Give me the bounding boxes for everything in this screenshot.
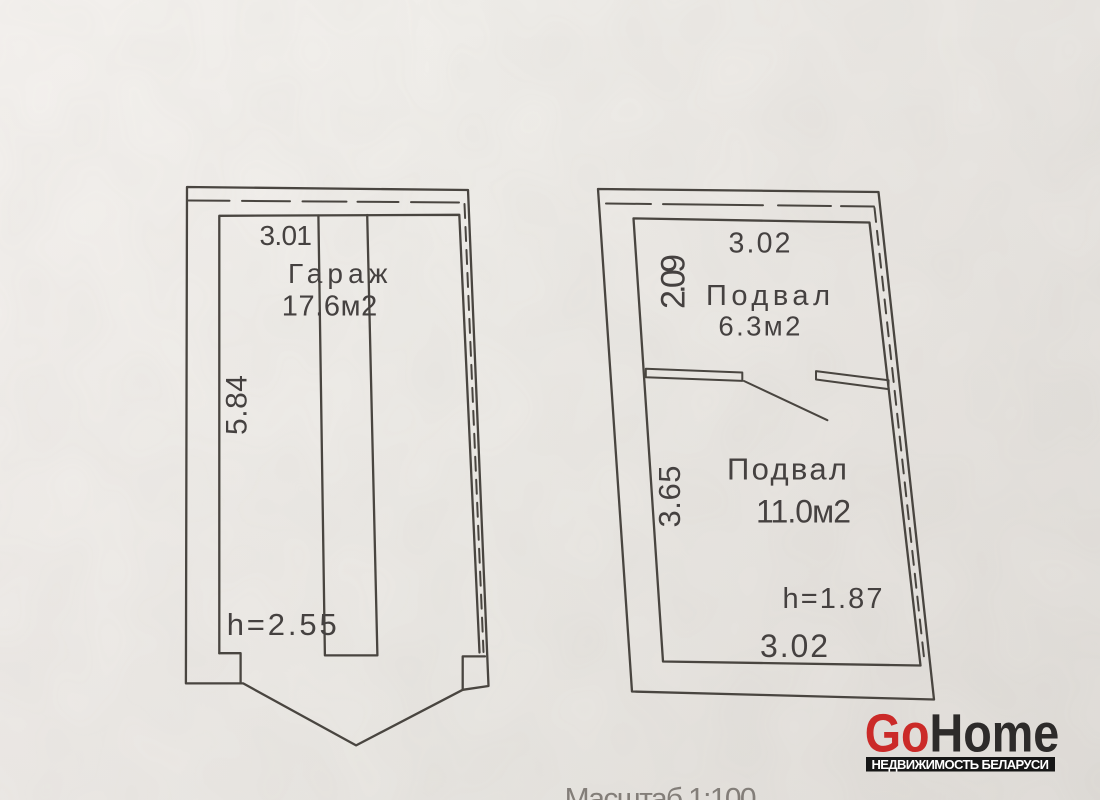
svg-text:h=2.55: h=2.55	[227, 607, 337, 642]
svg-text:6.3м2: 6.3м2	[718, 311, 800, 342]
svg-text:Масштаб 1:100: Масштаб 1:100	[565, 783, 757, 800]
svg-text:НЕДВИЖИМОСТЬ БЕЛАРУСИ: НЕДВИЖИМОСТЬ БЕЛАРУСИ	[872, 757, 1050, 772]
svg-text:GoHome: GoHome	[865, 702, 1060, 763]
svg-text:5.84: 5.84	[221, 375, 254, 435]
svg-text:2.09: 2.09	[655, 254, 693, 309]
svg-text:11.0м2: 11.0м2	[756, 494, 851, 530]
svg-text:3.65: 3.65	[652, 466, 687, 528]
svg-text:3.02: 3.02	[729, 228, 791, 260]
svg-text:3.01: 3.01	[260, 220, 313, 251]
svg-text:3.02: 3.02	[760, 628, 828, 664]
svg-text:h=1.87: h=1.87	[783, 583, 883, 615]
svg-text:Подвал: Подвал	[727, 452, 847, 487]
svg-text:17.6м2: 17.6м2	[282, 291, 378, 323]
